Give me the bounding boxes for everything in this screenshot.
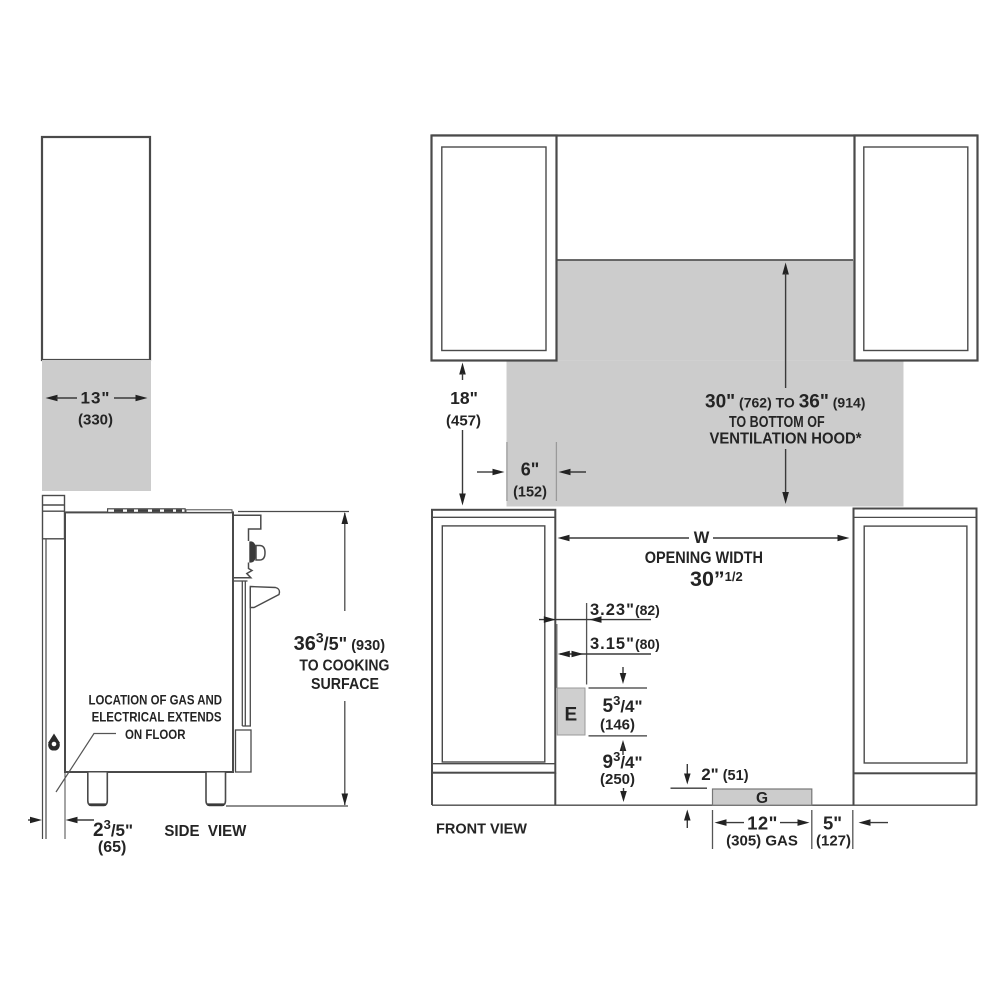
svg-text:ON FLOOR: ON FLOOR — [125, 726, 186, 742]
svg-text:G: G — [756, 790, 768, 807]
svg-text:13": 13" — [81, 389, 111, 408]
svg-text:SURFACE: SURFACE — [311, 676, 379, 693]
svg-text:93/4": 93/4" — [603, 749, 643, 773]
svg-text:E: E — [564, 705, 577, 726]
svg-text:VENTILATION HOOD*: VENTILATION HOOD* — [710, 431, 863, 448]
svg-text:(457): (457) — [446, 413, 481, 430]
svg-text:FRONT VIEW: FRONT VIEW — [436, 822, 527, 838]
svg-text:2" (51): 2" (51) — [701, 765, 749, 784]
svg-text:30”1/2: 30”1/2 — [690, 567, 743, 591]
svg-text:3.15"(80): 3.15"(80) — [590, 635, 660, 653]
svg-text:30" (762) TO 36" (914): 30" (762) TO 36" (914) — [705, 392, 865, 413]
svg-text:23/5": 23/5" — [93, 817, 133, 841]
svg-text:53/4": 53/4" — [603, 693, 643, 717]
svg-text:(146): (146) — [600, 717, 635, 734]
svg-text:(65): (65) — [98, 839, 126, 856]
svg-text:OPENING WIDTH: OPENING WIDTH — [645, 549, 763, 567]
svg-text:TO COOKING: TO COOKING — [299, 658, 389, 675]
svg-text:(127): (127) — [816, 833, 851, 850]
svg-text:5": 5" — [823, 813, 842, 834]
svg-text:6": 6" — [521, 460, 540, 480]
svg-text:ELECTRICAL EXTENDS: ELECTRICAL EXTENDS — [92, 709, 222, 725]
svg-text:(330): (330) — [78, 412, 113, 429]
svg-text:TO BOTTOM OF: TO BOTTOM OF — [729, 414, 825, 431]
svg-text:18": 18" — [450, 388, 478, 408]
svg-text:SIDE VIEW: SIDE VIEW — [164, 823, 246, 840]
svg-text:(250): (250) — [600, 771, 635, 788]
svg-text:3.23"(82): 3.23"(82) — [590, 601, 660, 619]
svg-text:363/5" (930): 363/5" (930) — [294, 630, 386, 656]
svg-text:(305) GAS: (305) GAS — [726, 833, 798, 850]
svg-text:(152): (152) — [513, 485, 547, 501]
svg-text:LOCATION OF GAS AND: LOCATION OF GAS AND — [89, 692, 223, 708]
svg-text:W: W — [694, 529, 710, 547]
svg-text:12": 12" — [747, 813, 778, 834]
